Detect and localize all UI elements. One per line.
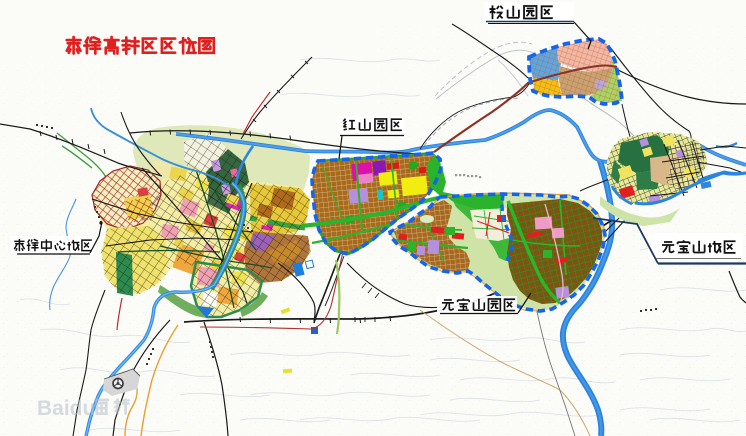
svg-text:Baidu: Baidu bbox=[37, 397, 95, 420]
